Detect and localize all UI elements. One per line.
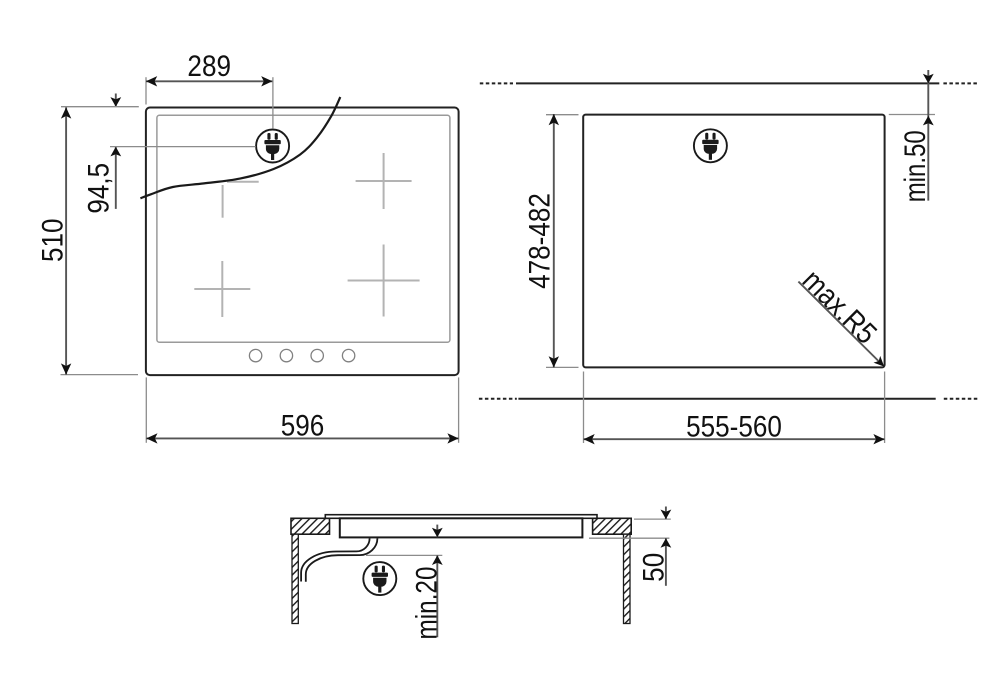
svg-text:94,5: 94,5 xyxy=(82,163,115,214)
svg-text:510: 510 xyxy=(36,218,69,262)
svg-text:50: 50 xyxy=(637,553,670,582)
svg-text:289: 289 xyxy=(187,50,231,83)
svg-text:min.50: min.50 xyxy=(898,130,932,202)
svg-text:min.20: min.20 xyxy=(409,567,443,640)
svg-text:555-560: 555-560 xyxy=(686,410,782,443)
svg-text:478-482: 478-482 xyxy=(523,193,556,289)
svg-text:596: 596 xyxy=(281,409,325,442)
